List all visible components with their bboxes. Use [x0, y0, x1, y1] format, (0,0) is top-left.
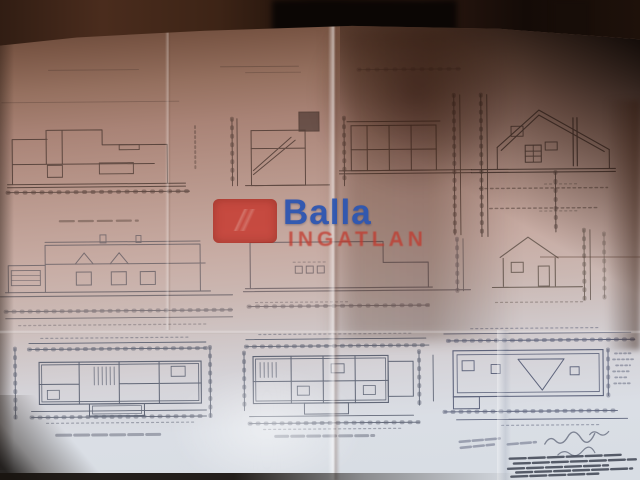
- panel-front-elevation: [0, 234, 233, 326]
- illegible-notes-block: [508, 454, 637, 476]
- balla-logo-icon: [213, 199, 277, 243]
- panel-roof-plan: [444, 327, 636, 448]
- handwritten-signature: [545, 431, 609, 455]
- panel-floorplan-left: [15, 337, 211, 436]
- panel-top-right-elevation: [471, 93, 616, 236]
- logo-glyph: [225, 209, 263, 231]
- panel-floorplan-center: [244, 333, 434, 437]
- watermark-brand: Balla: [283, 193, 372, 233]
- panel-section-a: [220, 66, 329, 186]
- panel-gable-elevation: [492, 184, 605, 303]
- watermark-subtitle: INGATLAN: [288, 228, 427, 252]
- photo-of-blueprint: Balla INGATLAN: [0, 0, 640, 480]
